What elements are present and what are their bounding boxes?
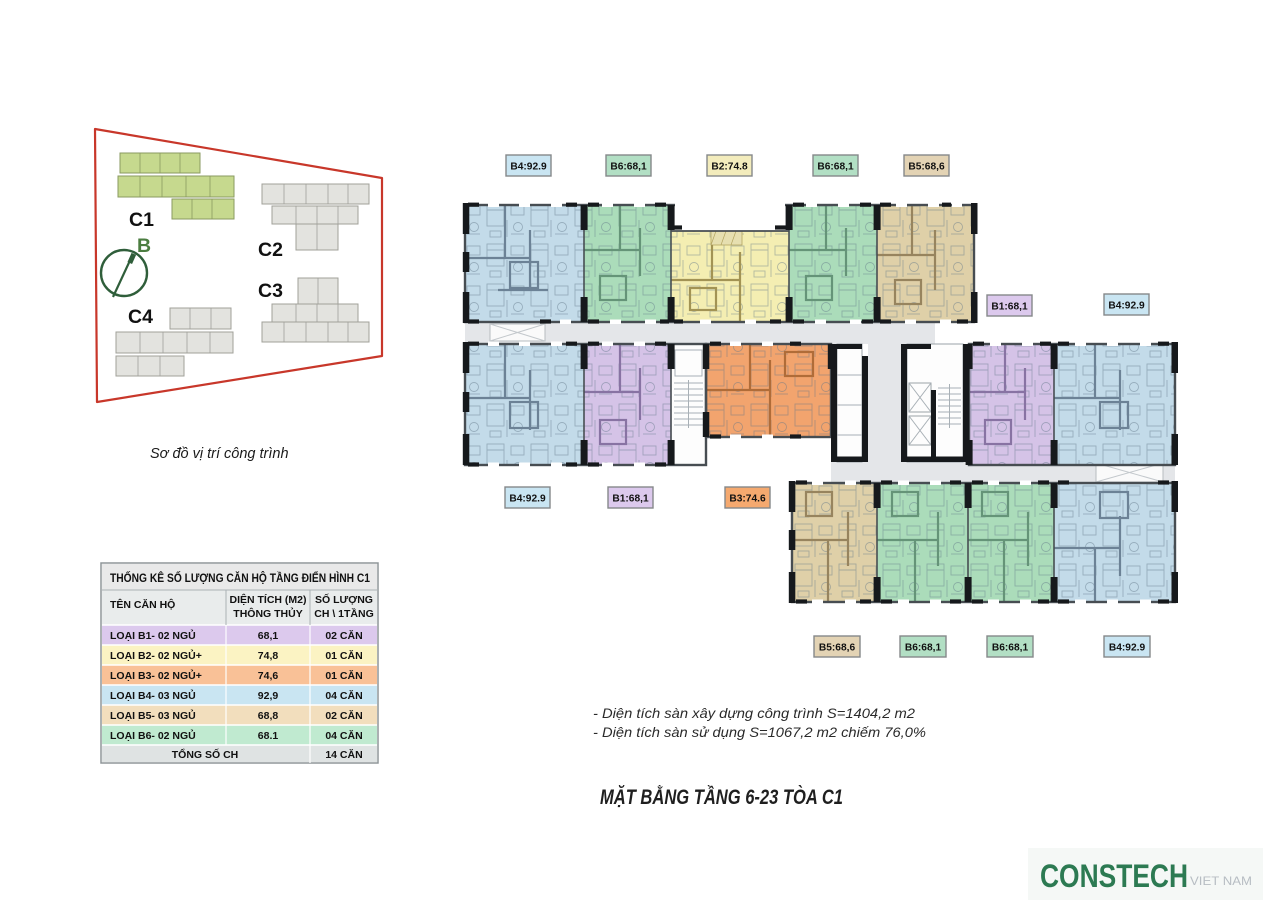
svg-text:68,1: 68,1 <box>258 630 279 642</box>
svg-text:74,8: 74,8 <box>258 650 279 662</box>
svg-text:14 CĂN: 14 CĂN <box>325 748 362 761</box>
svg-text:B4:92.9: B4:92.9 <box>510 162 547 173</box>
svg-text:B3:74.6: B3:74.6 <box>729 494 766 505</box>
svg-text:04 CĂN: 04 CĂN <box>325 689 362 702</box>
svg-text:LOẠI B2- 02 NGỦ+: LOẠI B2- 02 NGỦ+ <box>110 649 202 662</box>
svg-text:LOẠI B1- 02 NGỦ: LOẠI B1- 02 NGỦ <box>110 629 196 642</box>
svg-text:LOẠI B3- 02 NGỦ+: LOẠI B3- 02 NGỦ+ <box>110 669 202 682</box>
svg-text:01 CĂN: 01 CĂN <box>325 649 362 662</box>
svg-text:02 CĂN: 02 CĂN <box>325 709 362 722</box>
svg-text:SỐ LƯỢNG: SỐ LƯỢNG <box>315 592 373 606</box>
svg-text:B2:74.8: B2:74.8 <box>711 162 748 173</box>
svg-text:68.1: 68.1 <box>258 730 279 742</box>
svg-text:B4:92.9: B4:92.9 <box>509 494 546 505</box>
svg-text:B4:92.9: B4:92.9 <box>1108 301 1145 312</box>
svg-text:B4:92.9: B4:92.9 <box>1109 643 1146 654</box>
svg-text:02 CĂN: 02 CĂN <box>325 629 362 642</box>
svg-text:B5:68,6: B5:68,6 <box>819 643 856 654</box>
svg-text:CH \ 1TẦNG: CH \ 1TẦNG <box>314 607 374 620</box>
svg-text:B6:68,1: B6:68,1 <box>905 643 942 654</box>
svg-text:B6:68,1: B6:68,1 <box>992 643 1029 654</box>
svg-text:LOẠI B4- 03 NGỦ: LOẠI B4- 03 NGỦ <box>110 689 196 702</box>
svg-text:B6:68,1: B6:68,1 <box>610 162 647 173</box>
svg-text:CONSTECH: CONSTECH <box>1040 858 1188 894</box>
svg-text:DIỆN TÍCH (M2): DIỆN TÍCH (M2) <box>230 593 307 606</box>
svg-text:THỐNG KÊ SỐ LƯỢNG CĂN HỘ TẦNG: THỐNG KÊ SỐ LƯỢNG CĂN HỘ TẦNG ĐIỂN HÌNH … <box>110 571 371 585</box>
svg-text:74,6: 74,6 <box>258 670 279 682</box>
svg-text:Sơ đồ vị trí công trình: Sơ đồ vị trí công trình <box>150 446 289 462</box>
svg-text:TÊN CĂN HỘ: TÊN CĂN HỘ <box>110 598 175 611</box>
svg-text:B: B <box>137 235 151 257</box>
svg-text:C3: C3 <box>258 280 283 302</box>
svg-text:B1:68,1: B1:68,1 <box>991 302 1028 313</box>
svg-text:C4: C4 <box>128 306 153 328</box>
svg-text:04 CĂN: 04 CĂN <box>325 729 362 742</box>
svg-text:MẶT BẰNG TẦNG 6-23 TÒA C1: MẶT BẰNG TẦNG 6-23 TÒA C1 <box>600 785 843 809</box>
svg-text:LOẠI B6- 02 NGỦ: LOẠI B6- 02 NGỦ <box>110 729 196 742</box>
svg-text:TỔNG SỐ CH: TỔNG SỐ CH <box>172 747 239 761</box>
svg-text:B6:68,1: B6:68,1 <box>817 162 854 173</box>
svg-text:C1: C1 <box>129 209 154 231</box>
svg-text:B5:68,6: B5:68,6 <box>908 162 945 173</box>
svg-text:92,9: 92,9 <box>258 690 279 702</box>
svg-text:- Diện tích sàn sử dụng S=1067: - Diện tích sàn sử dụng S=1067,2 m2 chiế… <box>593 724 926 740</box>
svg-text:68,8: 68,8 <box>258 710 279 722</box>
svg-text:THÔNG THỦY: THÔNG THỦY <box>233 607 302 620</box>
svg-text:LOẠI B5- 03 NGỦ: LOẠI B5- 03 NGỦ <box>110 709 196 722</box>
svg-text:VIET NAM: VIET NAM <box>1190 876 1252 888</box>
svg-text:01 CĂN: 01 CĂN <box>325 669 362 682</box>
svg-text:B1:68,1: B1:68,1 <box>612 494 649 505</box>
svg-text:C2: C2 <box>258 239 283 261</box>
svg-text:- Diện tích sàn xây dựng công: - Diện tích sàn xây dựng công trình S=14… <box>593 705 915 721</box>
